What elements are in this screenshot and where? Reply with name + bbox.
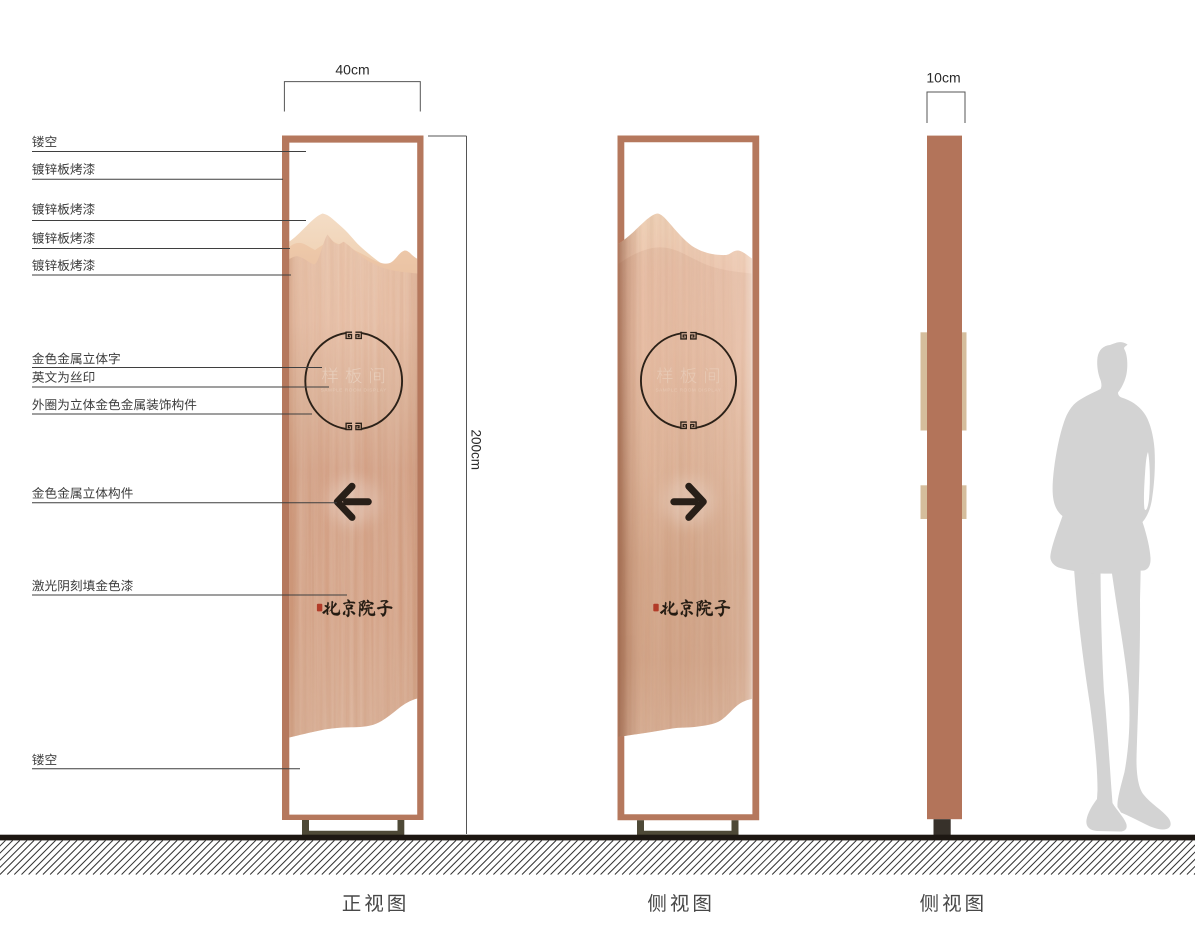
svg-text:10cm: 10cm — [926, 70, 960, 86]
svg-text:200cm: 200cm — [469, 430, 484, 471]
svg-text:40cm: 40cm — [335, 62, 369, 78]
svg-text:SAMPLE ROOM DISPLAY: SAMPLE ROOM DISPLAY — [321, 388, 387, 393]
svg-text:SAMPLE ROOM DISPLAY: SAMPLE ROOM DISPLAY — [655, 388, 721, 393]
